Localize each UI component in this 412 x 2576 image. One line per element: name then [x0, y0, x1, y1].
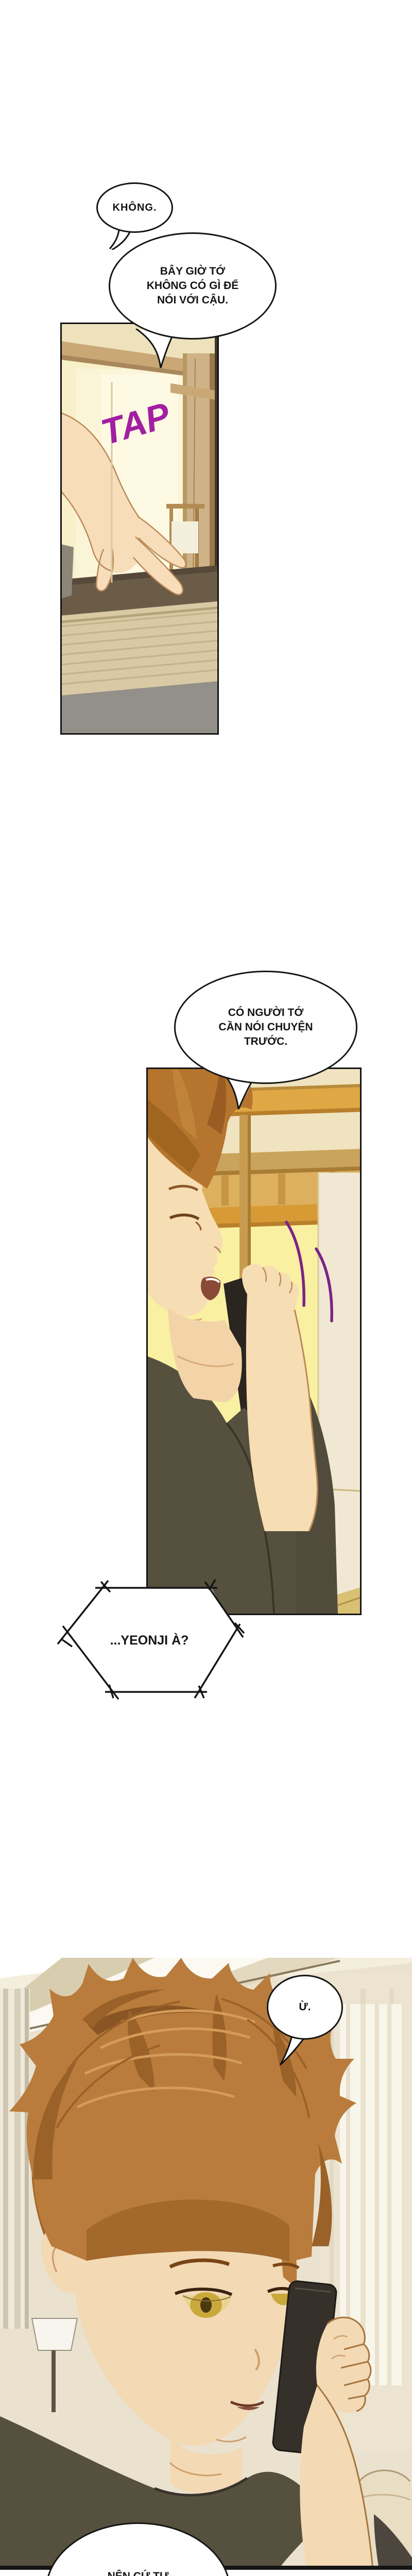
- svg-text:...YEONJI À?: ...YEONJI À?: [110, 1633, 189, 1648]
